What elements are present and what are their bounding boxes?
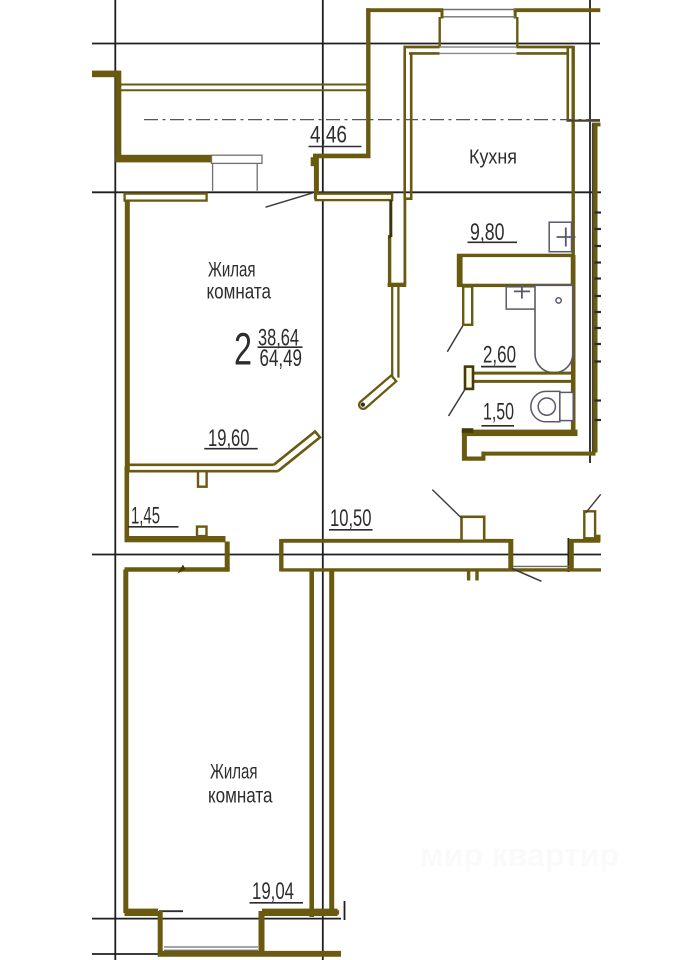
svg-text:2,60: 2,60 <box>483 342 516 369</box>
svg-text:Жилая: Жилая <box>208 259 256 282</box>
svg-text:2: 2 <box>234 324 252 375</box>
svg-text:комната: комната <box>207 281 272 304</box>
svg-text:комната: комната <box>208 785 273 808</box>
svg-text:мир квартир: мир квартир <box>420 837 619 873</box>
svg-text:64,49: 64,49 <box>260 345 303 372</box>
svg-text:Кухня: Кухня <box>469 147 517 169</box>
svg-text:10,50: 10,50 <box>330 505 372 532</box>
svg-text:1,50: 1,50 <box>483 399 514 426</box>
svg-text:Жилая: Жилая <box>210 761 258 784</box>
svg-text:4,46: 4,46 <box>310 122 347 149</box>
svg-text:1,45: 1,45 <box>131 503 160 530</box>
svg-text:19,04: 19,04 <box>252 878 294 905</box>
